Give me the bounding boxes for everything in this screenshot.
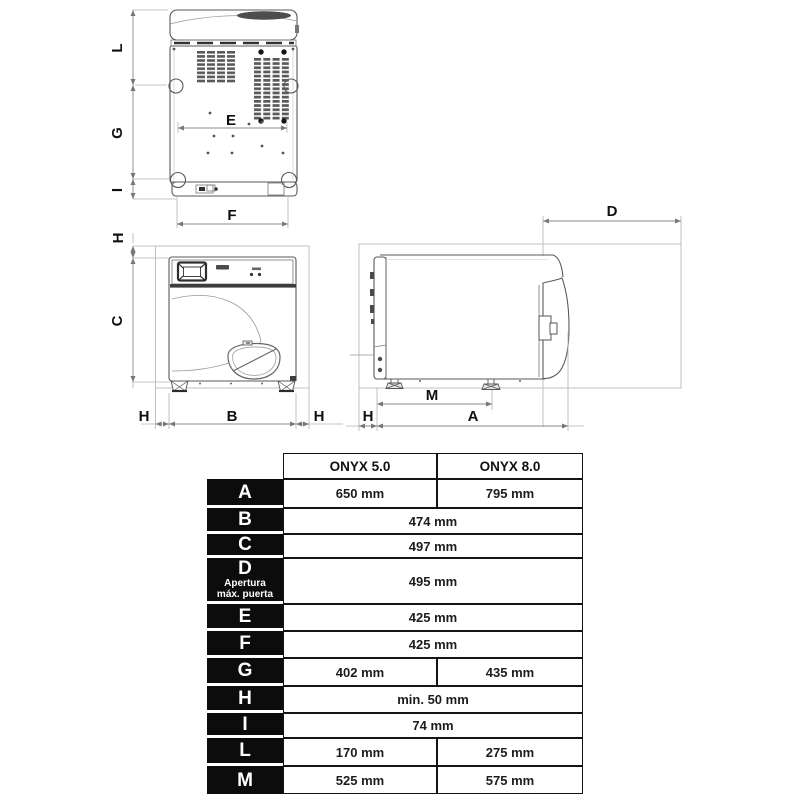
door-handle xyxy=(228,341,280,379)
panel-button xyxy=(250,273,253,276)
row-label-F: F xyxy=(207,631,283,658)
row-label-D: D Apertura máx. puerta xyxy=(207,558,283,604)
front-feet xyxy=(171,381,295,391)
dim-label-H-left: H xyxy=(139,408,150,425)
top-view-machine xyxy=(169,10,299,196)
panel-slot xyxy=(216,265,229,270)
dim-label-H-right: H xyxy=(314,408,325,425)
dim-label-H-side: H xyxy=(363,408,374,425)
dim-chain-LGI: L G I xyxy=(109,10,176,199)
side-door-handle xyxy=(539,316,557,340)
cell-L-onyx5: 170 mm xyxy=(283,738,437,766)
row-label-I: I xyxy=(207,713,283,738)
dim-label-A: A xyxy=(468,408,479,425)
side-screw-left xyxy=(169,79,183,93)
dim-label-C: C xyxy=(109,315,126,326)
dim-H-top-and-C: H C xyxy=(109,233,170,388)
column-header-onyx-8: ONYX 8.0 xyxy=(437,453,583,479)
cell-A-onyx8: 795 mm xyxy=(437,479,583,508)
side-view-machine xyxy=(350,255,569,390)
cell-C: 497 mm xyxy=(283,534,583,558)
panel-button xyxy=(258,273,261,276)
column-header-onyx-5: ONYX 5.0 xyxy=(283,453,437,479)
row-label-B: B xyxy=(207,508,283,534)
cell-L-onyx8: 275 mm xyxy=(437,738,583,766)
row-label-H: H xyxy=(207,686,283,713)
dim-label-D: D xyxy=(607,203,618,220)
cell-I: 74 mm xyxy=(283,713,583,738)
dim-HBH-bottom: H B H xyxy=(139,388,343,429)
row-label-D-sublabel-2: máx. puerta xyxy=(217,589,273,601)
front-view-drawing: H C H B H xyxy=(90,228,360,440)
foot-top-left xyxy=(171,173,186,188)
dim-F: F xyxy=(177,196,288,228)
cell-M-onyx8: 575 mm xyxy=(437,766,583,794)
dim-label-B: B xyxy=(227,408,238,425)
vent-grid-right xyxy=(254,58,289,120)
dim-label-F: F xyxy=(227,207,236,224)
row-label-D-sublabel-1: Apertura xyxy=(224,578,266,590)
cell-D: 495 mm xyxy=(283,558,583,604)
vent-grid-left xyxy=(197,51,235,83)
dim-label-I: I xyxy=(109,188,126,192)
dim-label-G: G xyxy=(109,127,126,139)
table-corner-cell xyxy=(207,453,283,479)
side-view-drawing: D xyxy=(330,195,700,440)
panel-button-bar xyxy=(252,268,261,271)
cell-F: 425 mm xyxy=(283,631,583,658)
lid-handle-recess xyxy=(237,11,291,19)
row-label-L: L xyxy=(207,738,283,766)
door-seam-upper xyxy=(172,295,261,341)
top-view-drawing: E F L G I xyxy=(90,0,320,238)
cell-E: 425 mm xyxy=(283,604,583,631)
front-view-machine xyxy=(169,257,297,391)
dim-label-M: M xyxy=(426,387,439,404)
cell-G-onyx8: 435 mm xyxy=(437,658,583,686)
dim-label-E: E xyxy=(226,112,236,129)
dim-label-L: L xyxy=(109,43,126,52)
cell-G-onyx5: 402 mm xyxy=(283,658,437,686)
dimensions-table: ONYX 5.0 ONYX 8.0 A 650 mm 795 mm B 474 … xyxy=(207,453,583,794)
row-label-A: A xyxy=(207,479,283,508)
row-label-G: G xyxy=(207,658,283,686)
cell-A-onyx5: 650 mm xyxy=(283,479,437,508)
autoclave-dimensions-sheet: E F L G I xyxy=(0,0,800,800)
cell-H: min. 50 mm xyxy=(283,686,583,713)
cell-M-onyx5: 525 mm xyxy=(283,766,437,794)
cell-B: 474 mm xyxy=(283,508,583,534)
row-label-E: E xyxy=(207,604,283,631)
row-label-C: C xyxy=(207,534,283,558)
dim-D: D xyxy=(543,203,681,427)
row-label-M: M xyxy=(207,766,283,794)
dim-M: M xyxy=(377,387,492,410)
dim-label-H-top: H xyxy=(110,233,127,244)
